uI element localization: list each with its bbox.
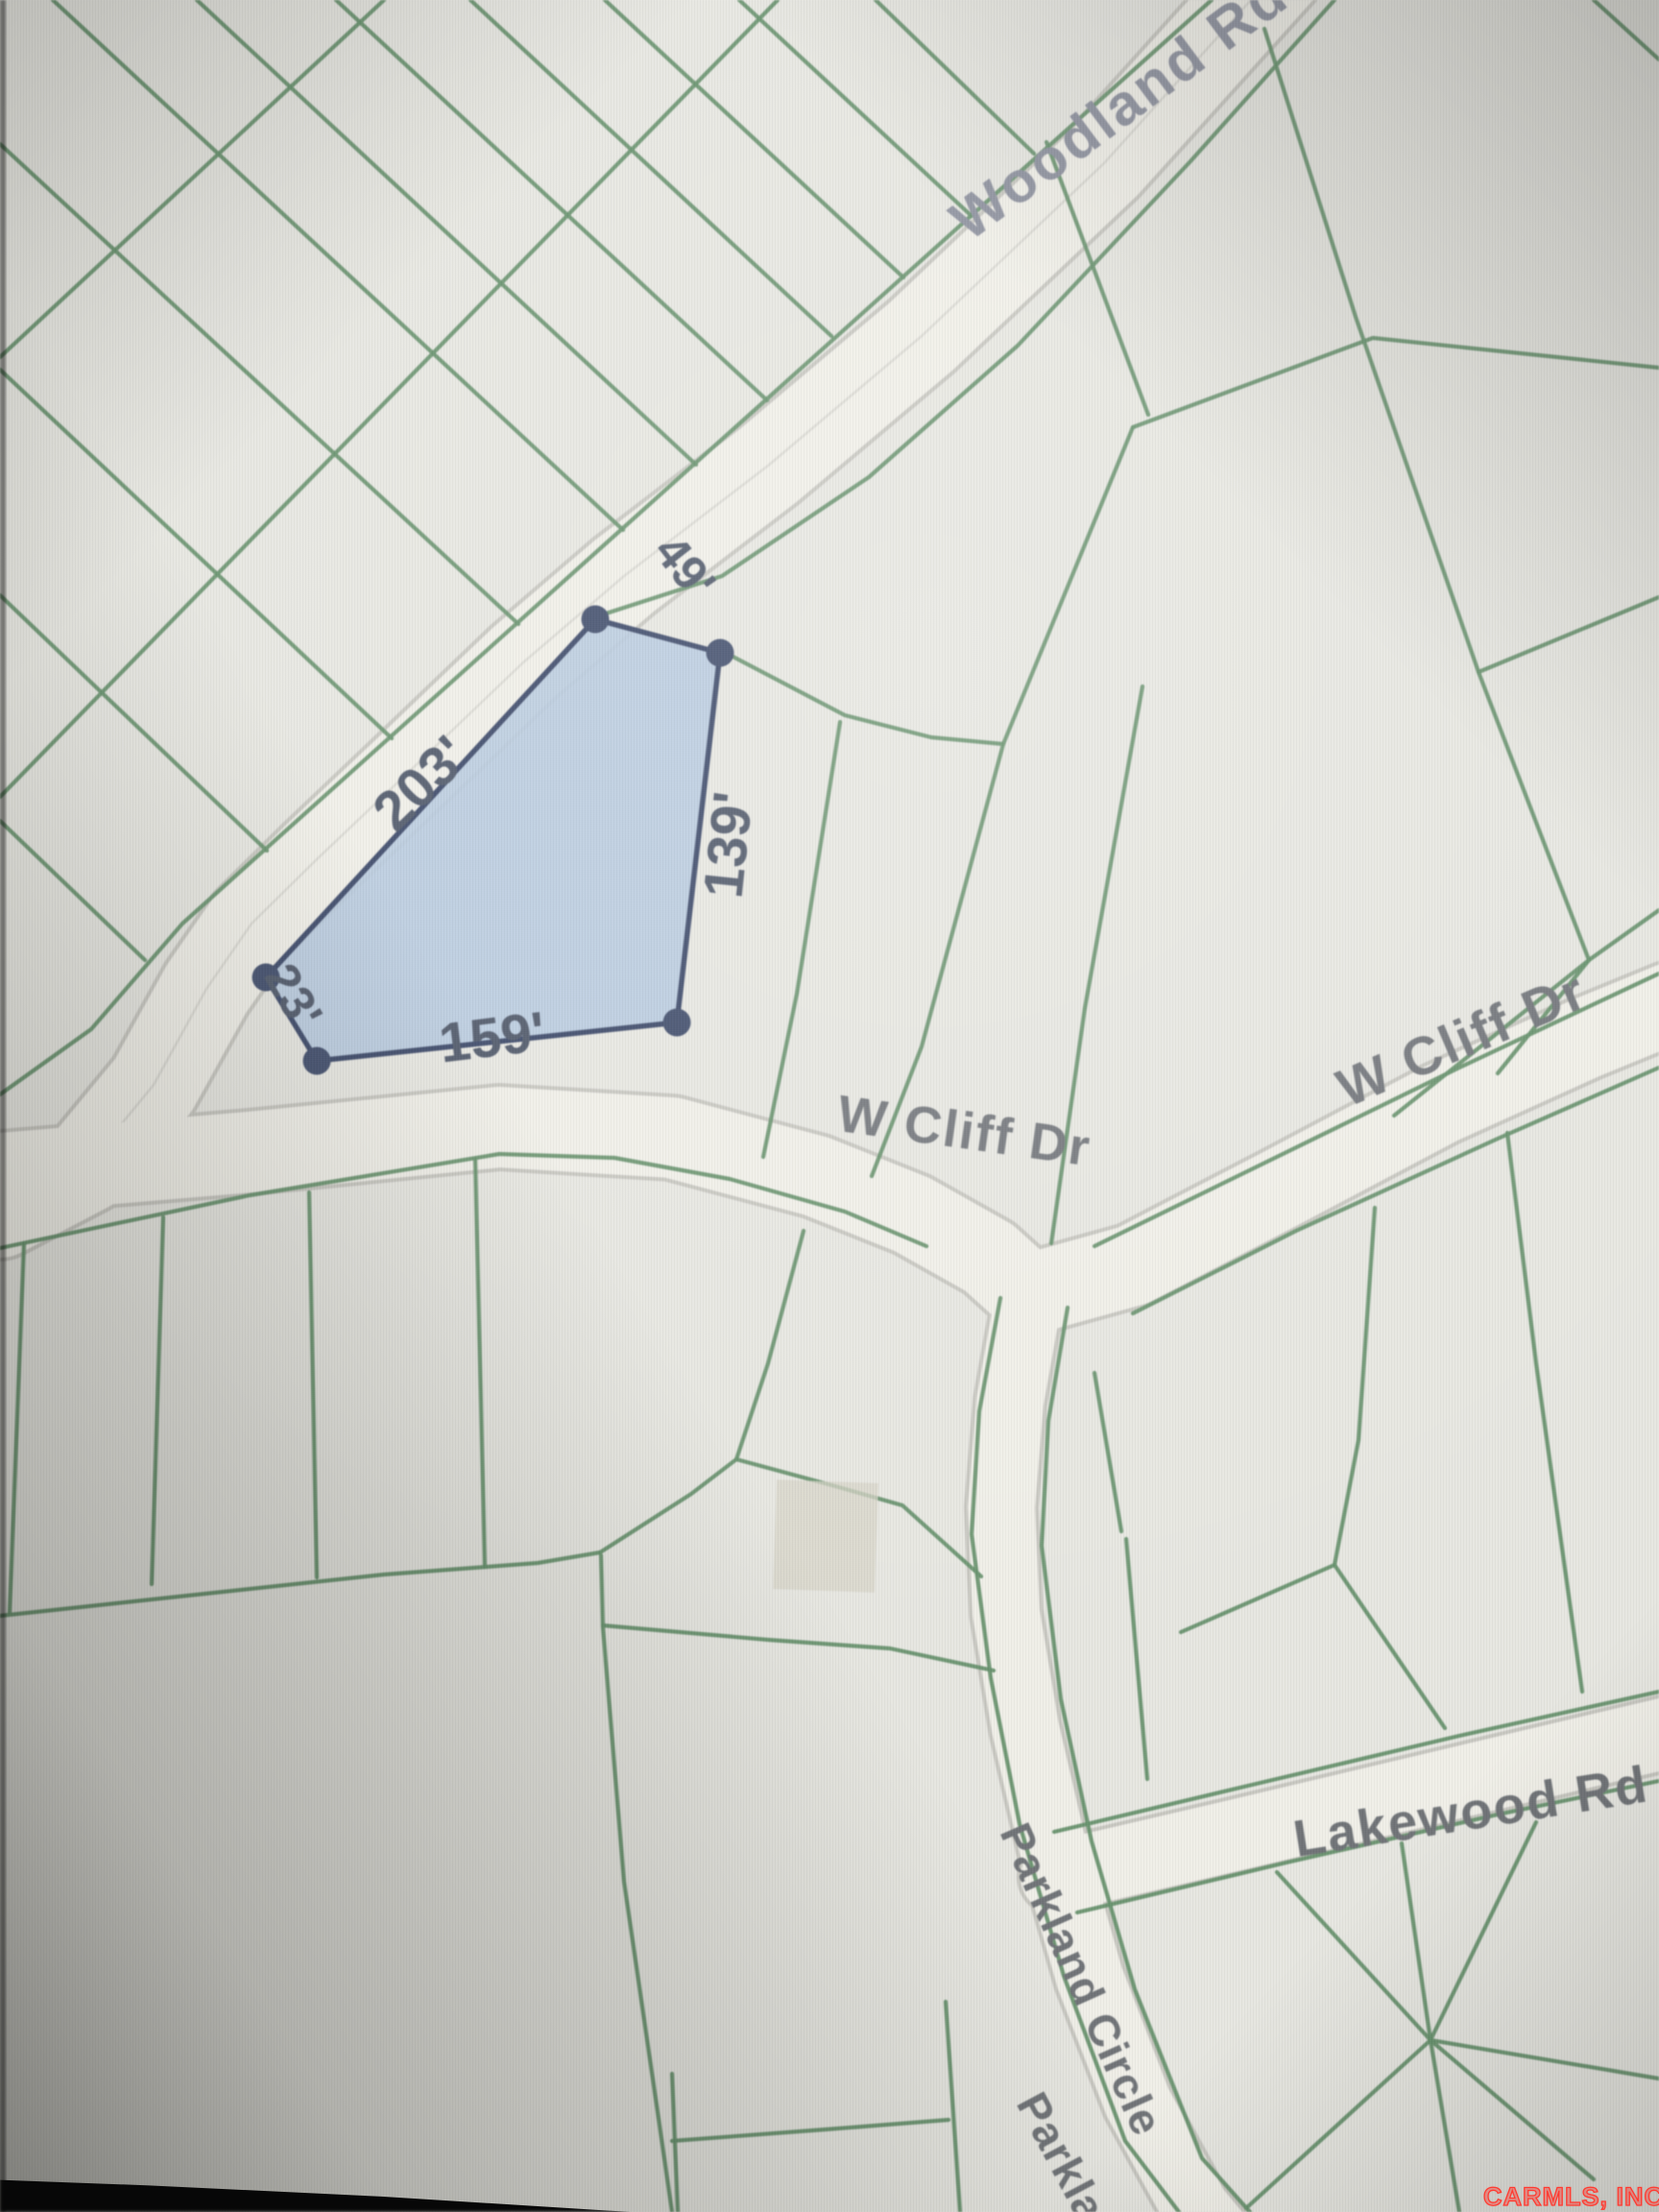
parcel-vertex-dot xyxy=(303,1047,331,1075)
map-canvas[interactable]: 203'49'139'159'23'Woodland RdW Cliff DrW… xyxy=(0,0,1659,2212)
parcel-vertex-dot xyxy=(663,1009,691,1037)
map-screen: 203'49'139'159'23'Woodland RdW Cliff DrW… xyxy=(0,0,1659,2212)
screenshot-root: { "map": { "background": "#e9e9e3", "col… xyxy=(0,0,1659,2212)
dimension-label: 159' xyxy=(436,1000,549,1075)
parcel-vertex-dot xyxy=(707,639,734,667)
mls-watermark: CARMLS, INC xyxy=(1483,2182,1659,2212)
building-footprint xyxy=(773,1479,878,1593)
parcel-vertex-dot xyxy=(582,606,610,634)
map-viewport[interactable]: 203'49'139'159'23'Woodland RdW Cliff DrW… xyxy=(0,0,1659,2212)
dimension-label: 139' xyxy=(692,789,765,902)
